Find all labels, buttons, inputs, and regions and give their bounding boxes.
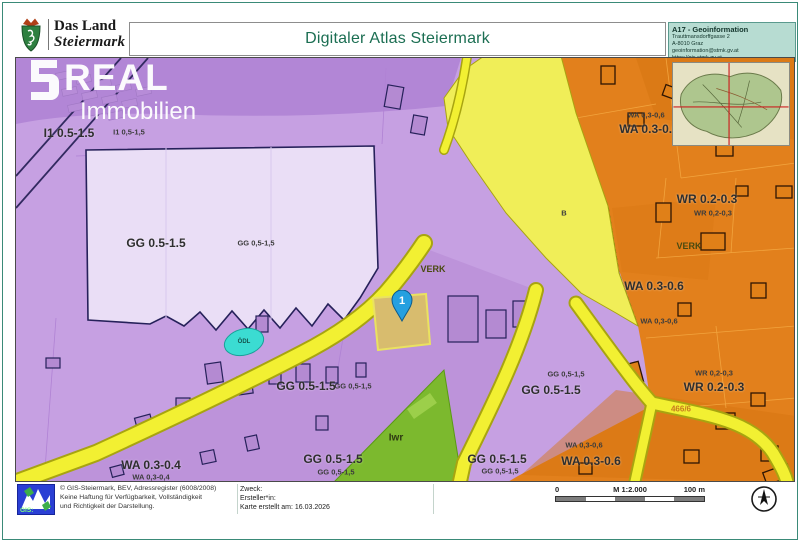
scale-end: 100 m (684, 485, 705, 494)
steiermark-coat-of-arms-icon (18, 17, 44, 53)
page-title: Digitaler Atlas Steiermark (305, 30, 490, 48)
map-footer: GIS: © GIS-Steiermark, BEV, Adressregist… (15, 483, 795, 519)
pin-number: 1 (399, 295, 405, 307)
zweck-label: Zweck: (240, 485, 330, 494)
map-title-box: Digitaler Atlas Steiermark (129, 22, 666, 56)
created-date-label: Karte erstellt am: 16.03.2026 (240, 503, 330, 512)
map-pin-marker[interactable]: 1 (391, 290, 413, 322)
info-address1: Trauttmansdorffgasse 2 (672, 34, 792, 41)
styria-overview-icon (673, 63, 789, 145)
atlas-page: Das Land Steiermark Digitaler Atlas Stei… (0, 0, 800, 542)
scale-ratio: M 1:2.000 (613, 485, 647, 494)
scale-start: 0 (555, 485, 559, 494)
gis-steiermark-logo: GIS: (17, 484, 55, 515)
attribution-line: Keine Haftung für Verfügbarkeit, Vollstä… (60, 494, 245, 503)
info-address2: A-8010 Graz (672, 41, 792, 48)
attribution-line: und Richtigkeit der Darstellung. (60, 503, 245, 512)
footer-divider2 (433, 484, 434, 514)
footer-divider (237, 484, 238, 514)
attribution-line: © GIS-Steiermark, BEV, Adressregister (6… (60, 485, 245, 494)
info-email[interactable]: geoinformation@stmk.gv.at (672, 48, 792, 55)
north-arrow (750, 485, 778, 513)
styria-overview-map[interactable] (672, 62, 790, 146)
map-pin-icon: 1 (391, 290, 413, 322)
compass-north-arrow-icon (750, 485, 778, 513)
land-steiermark-logo: Das Land Steiermark (15, 13, 128, 56)
ersteller-label: Ersteller*in: (240, 494, 330, 503)
logo-line2: Steiermark (54, 35, 125, 51)
logo-line1: Das Land (54, 19, 125, 35)
geoinformation-info-box: A17 - Geoinformation Trauttmansdorffgass… (668, 22, 796, 62)
copyright-attribution: © GIS-Steiermark, BEV, Adressregister (6… (60, 485, 245, 511)
svg-text:GIS:: GIS: (20, 507, 33, 514)
scale-bar-group: 0 M 1:2.000 100 m (555, 485, 705, 502)
scale-bar (555, 496, 705, 502)
info-title: A17 - Geoinformation (672, 25, 792, 34)
